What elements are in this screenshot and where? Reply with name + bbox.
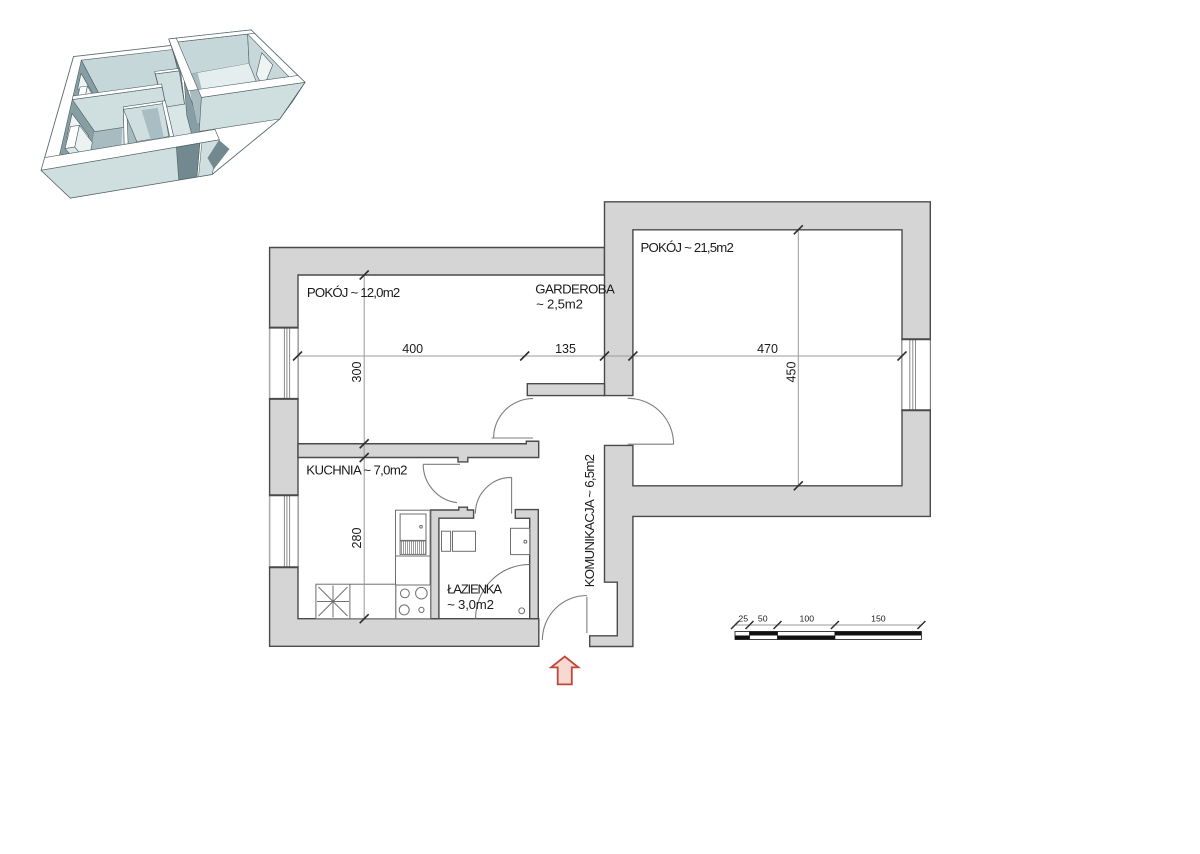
svg-text:POKÓJ ~ 21,5m2: POKÓJ ~ 21,5m2 bbox=[641, 240, 734, 255]
svg-text:400: 400 bbox=[402, 342, 423, 356]
svg-text:135: 135 bbox=[555, 342, 576, 356]
svg-text:~ 2,5m2: ~ 2,5m2 bbox=[536, 296, 583, 311]
svg-text:GARDEROBA: GARDEROBA bbox=[535, 282, 615, 297]
svg-text:~ 3,0m2: ~ 3,0m2 bbox=[447, 597, 494, 612]
svg-text:470: 470 bbox=[757, 342, 778, 356]
svg-text:KOMUNIKACJA ~ 6,5m2: KOMUNIKACJA ~ 6,5m2 bbox=[582, 454, 597, 587]
svg-text:300: 300 bbox=[350, 362, 364, 383]
svg-text:KUCHNIA ~ 7,0m2: KUCHNIA ~ 7,0m2 bbox=[306, 463, 407, 478]
svg-text:50: 50 bbox=[758, 613, 768, 623]
svg-text:450: 450 bbox=[784, 362, 798, 383]
svg-text:150: 150 bbox=[871, 613, 886, 623]
svg-text:25: 25 bbox=[738, 613, 748, 623]
svg-text:100: 100 bbox=[800, 613, 815, 623]
svg-text:POKÓJ ~ 12,0m2: POKÓJ ~ 12,0m2 bbox=[307, 285, 400, 300]
svg-text:ŁAZIENKA: ŁAZIENKA bbox=[447, 581, 502, 596]
svg-text:280: 280 bbox=[350, 528, 364, 549]
